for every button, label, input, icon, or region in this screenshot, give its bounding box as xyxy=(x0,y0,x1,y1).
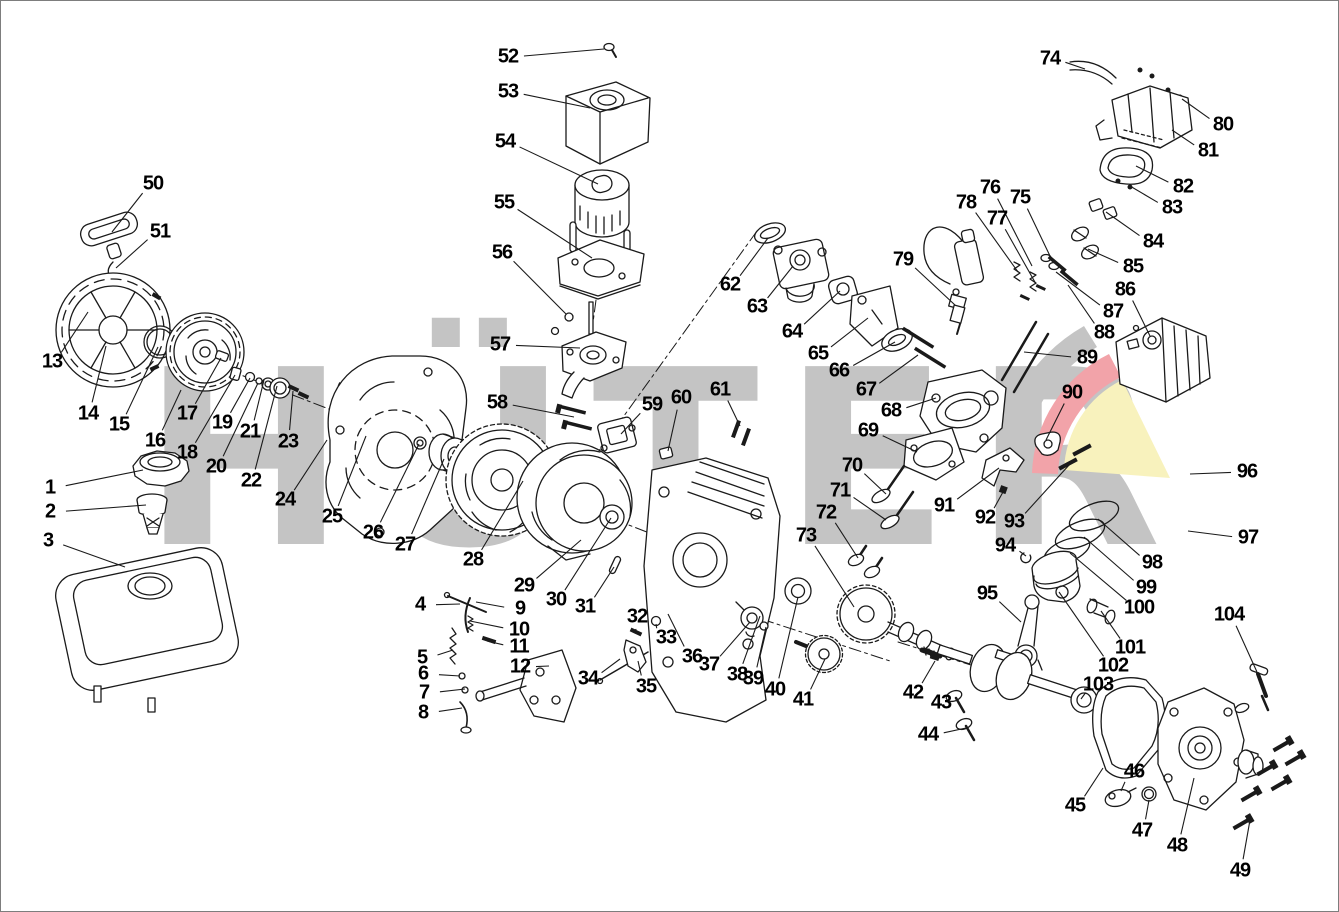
part-callout-35: 35 xyxy=(636,676,656,699)
part-callout-82: 82 xyxy=(1173,176,1193,199)
part-callout-75: 75 xyxy=(1010,187,1030,210)
part-callout-89: 89 xyxy=(1077,347,1097,370)
part-callout-30: 30 xyxy=(546,589,566,612)
part-callout-67: 67 xyxy=(856,379,876,402)
part-callout-73: 73 xyxy=(796,525,816,548)
part-callout-96: 96 xyxy=(1237,461,1257,484)
part-callout-85: 85 xyxy=(1123,256,1143,279)
part-callout-23: 23 xyxy=(278,431,298,454)
part-callout-97: 97 xyxy=(1238,527,1258,550)
part-callout-17: 17 xyxy=(177,403,197,426)
part-callout-57: 57 xyxy=(490,334,510,357)
part-callout-25: 25 xyxy=(322,506,342,529)
part-callout-76: 76 xyxy=(980,177,1000,200)
part-callout-87: 87 xyxy=(1103,301,1123,324)
part-callout-80: 80 xyxy=(1213,114,1233,137)
part-callout-43: 43 xyxy=(931,692,951,715)
part-callout-90: 90 xyxy=(1062,382,1082,405)
part-callout-14: 14 xyxy=(78,403,98,426)
part-callout-62: 62 xyxy=(720,274,740,297)
part-callout-39: 39 xyxy=(743,668,763,691)
part-callout-66: 66 xyxy=(829,360,849,383)
part-callout-32: 32 xyxy=(627,606,647,629)
part-callout-104: 104 xyxy=(1214,604,1244,627)
part-callout-20: 20 xyxy=(206,456,226,479)
part-callout-100: 100 xyxy=(1124,597,1154,620)
part-callout-12: 12 xyxy=(510,656,530,679)
part-callout-1: 1 xyxy=(45,477,55,500)
part-callout-63: 63 xyxy=(747,296,767,319)
part-callout-83: 83 xyxy=(1162,197,1182,220)
part-callout-92: 92 xyxy=(975,507,995,530)
part-callout-53: 53 xyxy=(498,81,518,104)
part-callout-54: 54 xyxy=(495,131,515,154)
part-callout-26: 26 xyxy=(363,522,383,545)
part-callout-2: 2 xyxy=(45,501,55,524)
part-callout-71: 71 xyxy=(830,480,850,503)
part-callout-70: 70 xyxy=(842,455,862,478)
part-callout-3: 3 xyxy=(43,530,53,553)
part-callout-61: 61 xyxy=(710,379,730,402)
part-callout-4: 4 xyxy=(415,594,425,617)
part-callout-27: 27 xyxy=(395,534,415,557)
part-callout-78: 78 xyxy=(956,192,976,215)
part-callout-19: 19 xyxy=(212,412,232,435)
part-callout-13: 13 xyxy=(42,351,62,374)
part-callout-64: 64 xyxy=(782,321,802,344)
part-callout-79: 79 xyxy=(893,249,913,272)
part-callout-15: 15 xyxy=(109,414,129,437)
part-callout-52: 52 xyxy=(498,46,518,69)
part-callout-40: 40 xyxy=(765,679,785,702)
part-callout-50: 50 xyxy=(143,173,163,196)
part-callout-42: 42 xyxy=(903,682,923,705)
part-callout-74: 74 xyxy=(1040,48,1060,71)
part-callout-93: 93 xyxy=(1004,511,1024,534)
part-callout-31: 31 xyxy=(575,596,595,619)
part-callout-69: 69 xyxy=(858,420,878,443)
part-callout-77: 77 xyxy=(987,208,1007,231)
part-callout-59: 59 xyxy=(642,394,662,417)
part-callout-29: 29 xyxy=(514,575,534,598)
part-callout-72: 72 xyxy=(816,502,836,525)
part-callout-103: 103 xyxy=(1083,674,1113,697)
callout-labels-layer: 1234567891011121314151617181920212223242… xyxy=(0,0,1339,912)
part-callout-37: 37 xyxy=(699,654,719,677)
engine-exploded-diagram: HÜTER xyxy=(0,0,1339,912)
part-callout-88: 88 xyxy=(1094,322,1114,345)
part-callout-81: 81 xyxy=(1198,140,1218,163)
part-callout-21: 21 xyxy=(240,421,260,444)
part-callout-16: 16 xyxy=(145,430,165,453)
part-callout-98: 98 xyxy=(1142,552,1162,575)
part-callout-33: 33 xyxy=(656,627,676,650)
part-callout-84: 84 xyxy=(1143,231,1163,254)
part-callout-22: 22 xyxy=(241,470,261,493)
part-callout-46: 46 xyxy=(1124,761,1144,784)
part-callout-48: 48 xyxy=(1167,835,1187,858)
part-callout-86: 86 xyxy=(1115,279,1135,302)
part-callout-41: 41 xyxy=(793,689,813,712)
part-callout-28: 28 xyxy=(463,549,483,572)
part-callout-94: 94 xyxy=(995,535,1015,558)
part-callout-91: 91 xyxy=(934,495,954,518)
part-callout-18: 18 xyxy=(177,442,197,465)
part-callout-65: 65 xyxy=(808,343,828,366)
part-callout-49: 49 xyxy=(1230,860,1250,883)
part-callout-95: 95 xyxy=(977,583,997,606)
part-callout-68: 68 xyxy=(881,400,901,423)
part-callout-45: 45 xyxy=(1065,795,1085,818)
part-callout-24: 24 xyxy=(275,489,295,512)
part-callout-34: 34 xyxy=(578,668,598,691)
part-callout-51: 51 xyxy=(150,221,170,244)
part-callout-56: 56 xyxy=(492,242,512,265)
part-callout-60: 60 xyxy=(671,387,691,410)
part-callout-58: 58 xyxy=(487,392,507,415)
part-callout-47: 47 xyxy=(1132,820,1152,843)
part-callout-9: 9 xyxy=(515,598,525,621)
part-callout-55: 55 xyxy=(494,192,514,215)
part-callout-8: 8 xyxy=(418,702,428,725)
part-callout-44: 44 xyxy=(918,724,938,747)
